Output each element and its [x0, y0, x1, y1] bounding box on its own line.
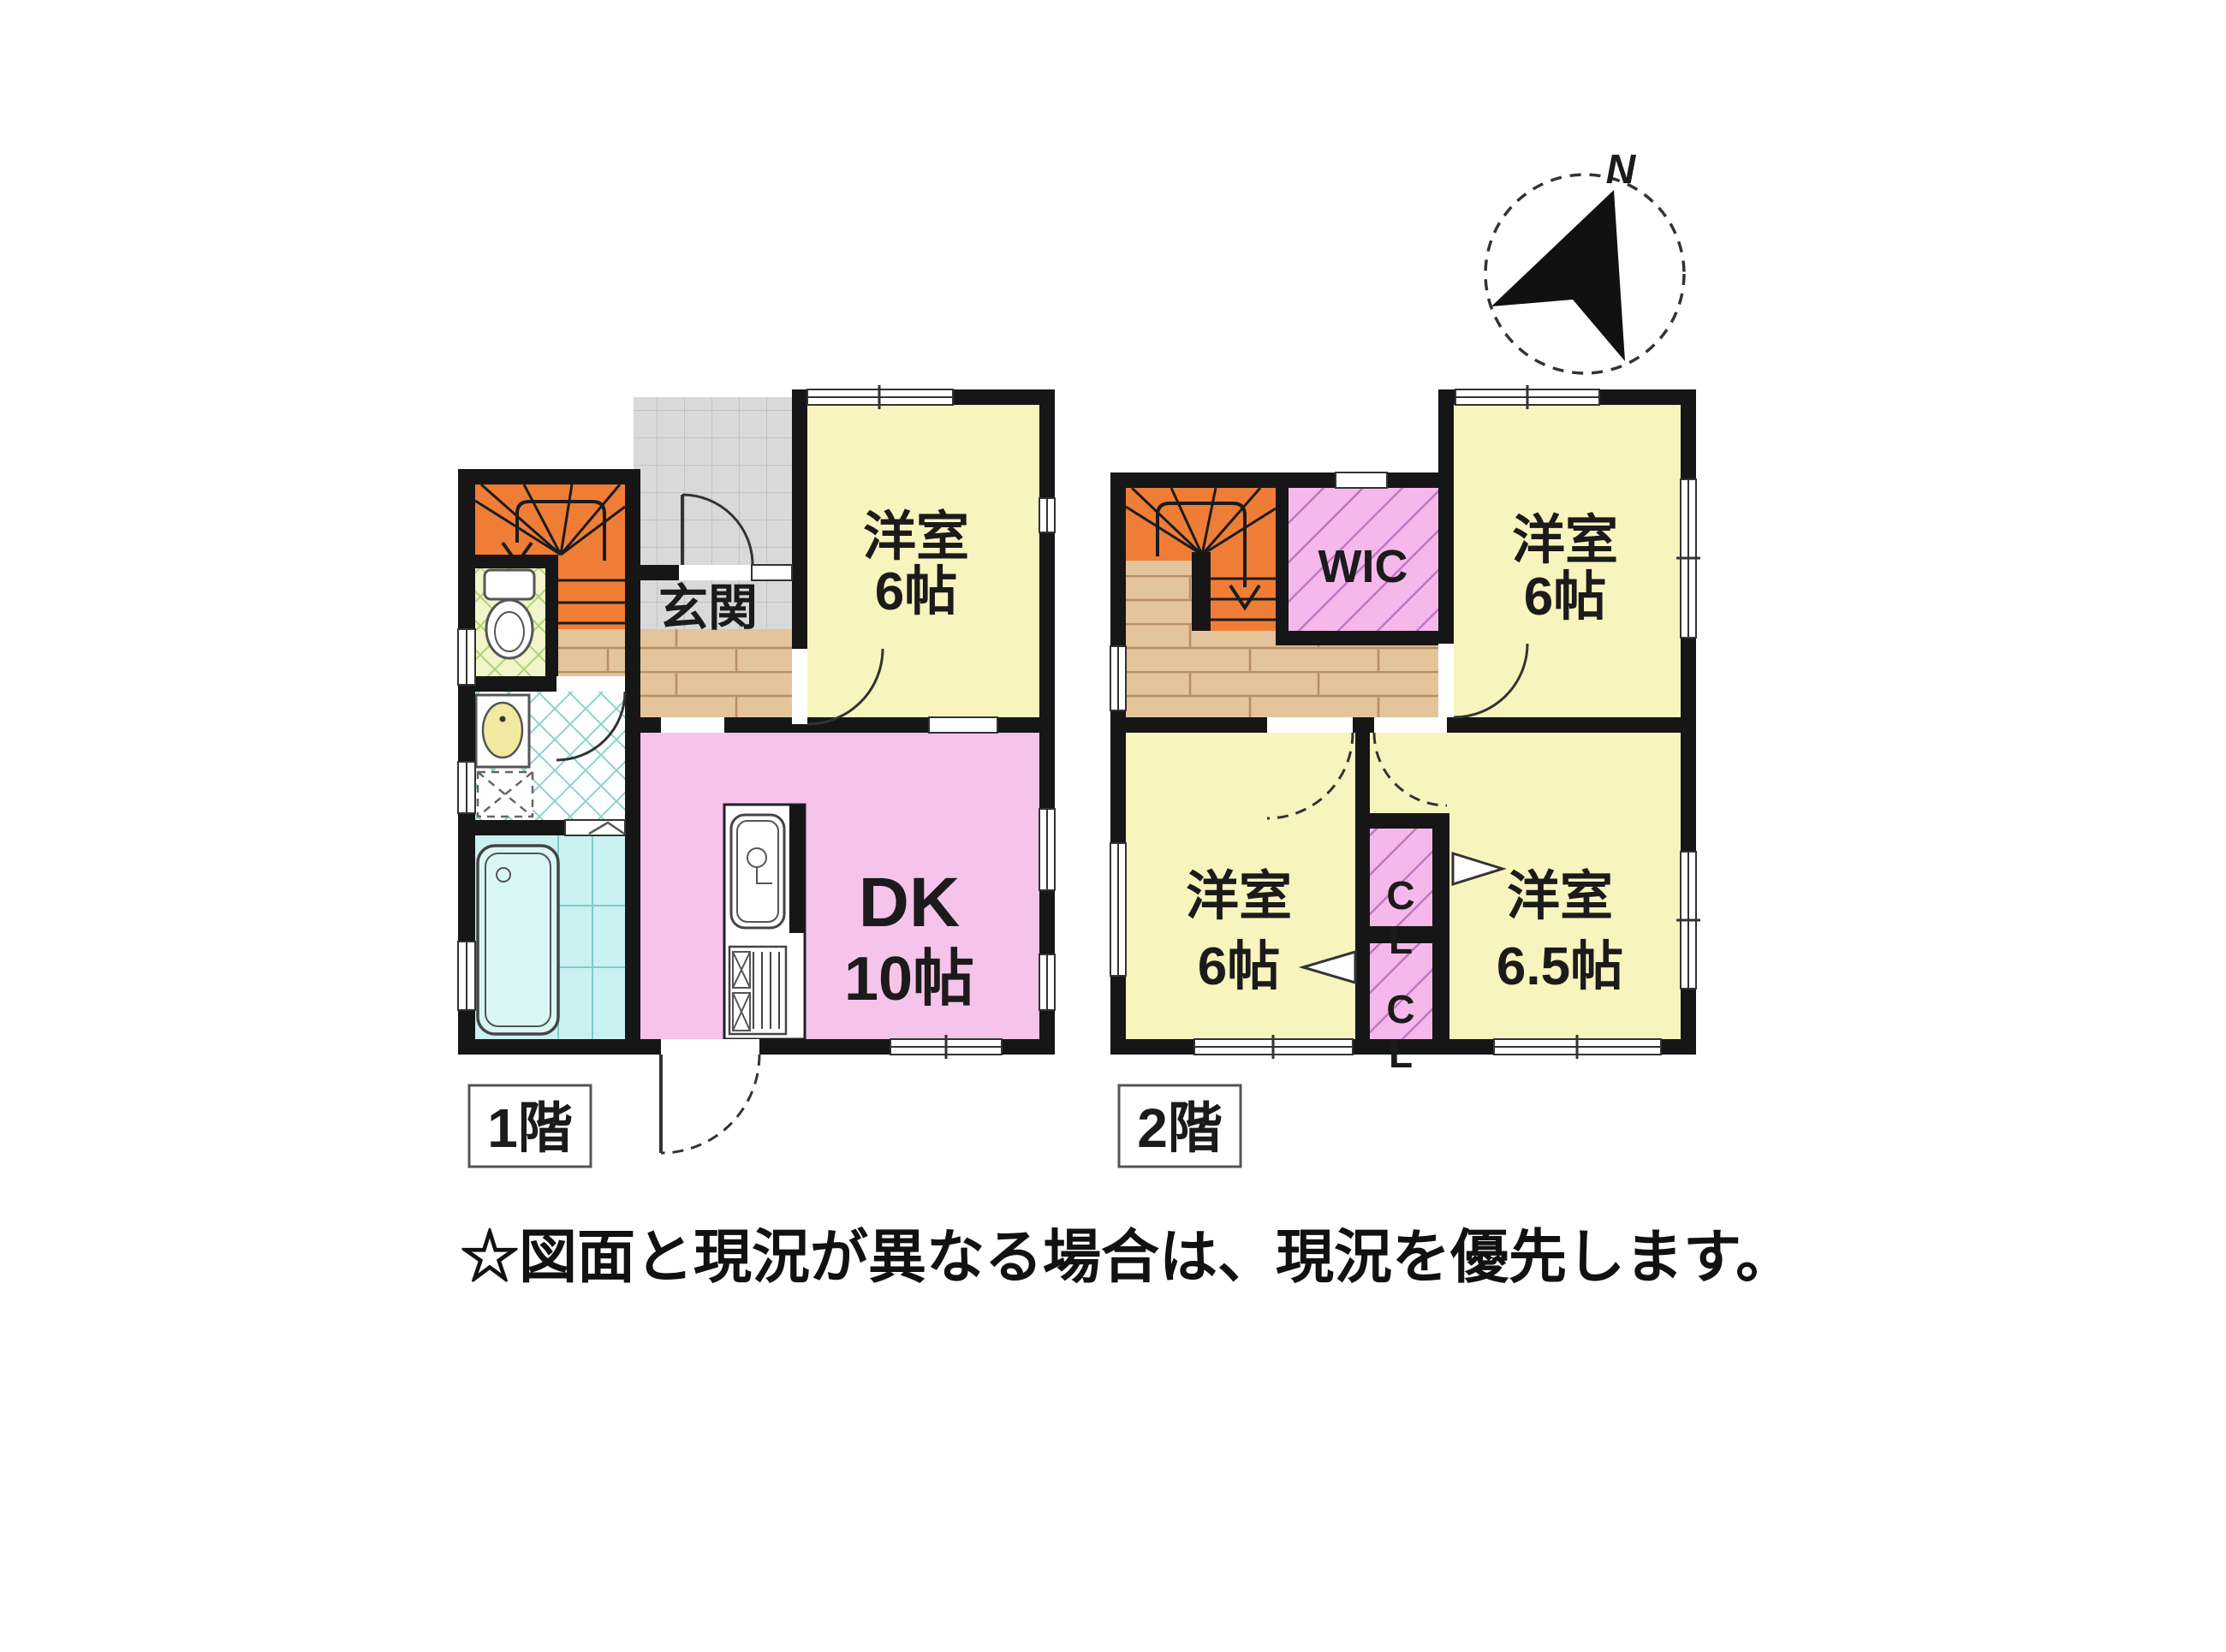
- room-se-name: 洋室: [1507, 867, 1613, 926]
- window-f2-right-ne: [1676, 479, 1700, 638]
- window-f2-bottom-se: [1494, 1035, 1661, 1059]
- window-f2-bottom-sw: [1194, 1035, 1353, 1059]
- window-f1-left-toilet: [458, 629, 475, 685]
- closet-lower-label: CL: [1378, 987, 1423, 1076]
- floor2-badge-label: 2階: [1137, 1097, 1223, 1159]
- entrance-door-opening: [679, 565, 752, 580]
- room-se-size: 6.5帖: [1497, 937, 1623, 996]
- room-ne-size: 6帖: [1524, 568, 1606, 627]
- window-f2-right-se: [1676, 852, 1700, 989]
- floor2-plan: WIC 洋室 6帖 洋室 6帖 洋室 6.5帖 CL CL: [1110, 385, 1700, 1076]
- north-arrow-icon: [1491, 190, 1625, 361]
- window-f1-left-washroom: [458, 762, 475, 813]
- dk-name: DK: [859, 864, 960, 942]
- window-f1-right-western: [1039, 498, 1055, 532]
- washing-machine-icon: [478, 772, 533, 817]
- compass-icon: N: [1485, 147, 1684, 373]
- stair-landing-f1: [558, 629, 625, 676]
- stair-landing-f2: [1126, 561, 1192, 631]
- dk-back-door-opening: [661, 1039, 759, 1055]
- compass-north-label: N: [1606, 147, 1637, 193]
- floor2-badge: 2階: [1119, 1085, 1241, 1167]
- toilet-icon: [485, 570, 534, 658]
- floorplan-page: N: [0, 0, 2226, 1652]
- bathtub-icon: [478, 846, 558, 1034]
- wic-label: WIC: [1318, 541, 1408, 592]
- window-f2-left-hall: [1110, 646, 1126, 710]
- room-sw-name: 洋室: [1186, 867, 1292, 926]
- window-f2-top-wic: [1336, 472, 1387, 488]
- room-ne-name: 洋室: [1512, 511, 1618, 570]
- window-f1-top: [807, 385, 953, 409]
- western-room-f1-name: 洋室: [863, 508, 969, 567]
- floor1-badge: 1階: [469, 1085, 591, 1167]
- window-f1-bottom-dk: [890, 1035, 1002, 1059]
- entrance-sidelight-window: [752, 565, 792, 580]
- dk-size: 10帖: [844, 945, 974, 1013]
- entrance-label: 玄関: [658, 580, 758, 636]
- floor1-badge-label: 1階: [487, 1097, 573, 1159]
- floorplan-drawing: N: [0, 0, 2226, 1652]
- dk-back-door-arc: [661, 1055, 759, 1153]
- window-f1-right-dk-upper: [1039, 809, 1055, 890]
- floor1-plan: 玄関 洋室 6帖 DK 10帖: [458, 385, 1055, 1153]
- window-f2-left-sw: [1110, 843, 1126, 976]
- closet-upper-label: CL: [1378, 873, 1423, 962]
- dk-transom-window: [929, 717, 997, 733]
- window-f1-left-bath: [458, 942, 475, 1010]
- room-sw-size: 6帖: [1198, 937, 1280, 996]
- hallway-f1: [640, 629, 792, 717]
- western-room-f1-size: 6帖: [875, 562, 957, 621]
- window-f2-top-ne: [1455, 385, 1599, 409]
- window-f1-right-dk-lower: [1039, 954, 1055, 1010]
- disclaimer-text: ☆図面と現況が異なる場合は、現況を優先します。: [461, 1225, 1794, 1290]
- washbasin-icon: [476, 695, 529, 767]
- kitchen-unit-icon: [724, 805, 805, 1039]
- room-dk: [640, 733, 1039, 1039]
